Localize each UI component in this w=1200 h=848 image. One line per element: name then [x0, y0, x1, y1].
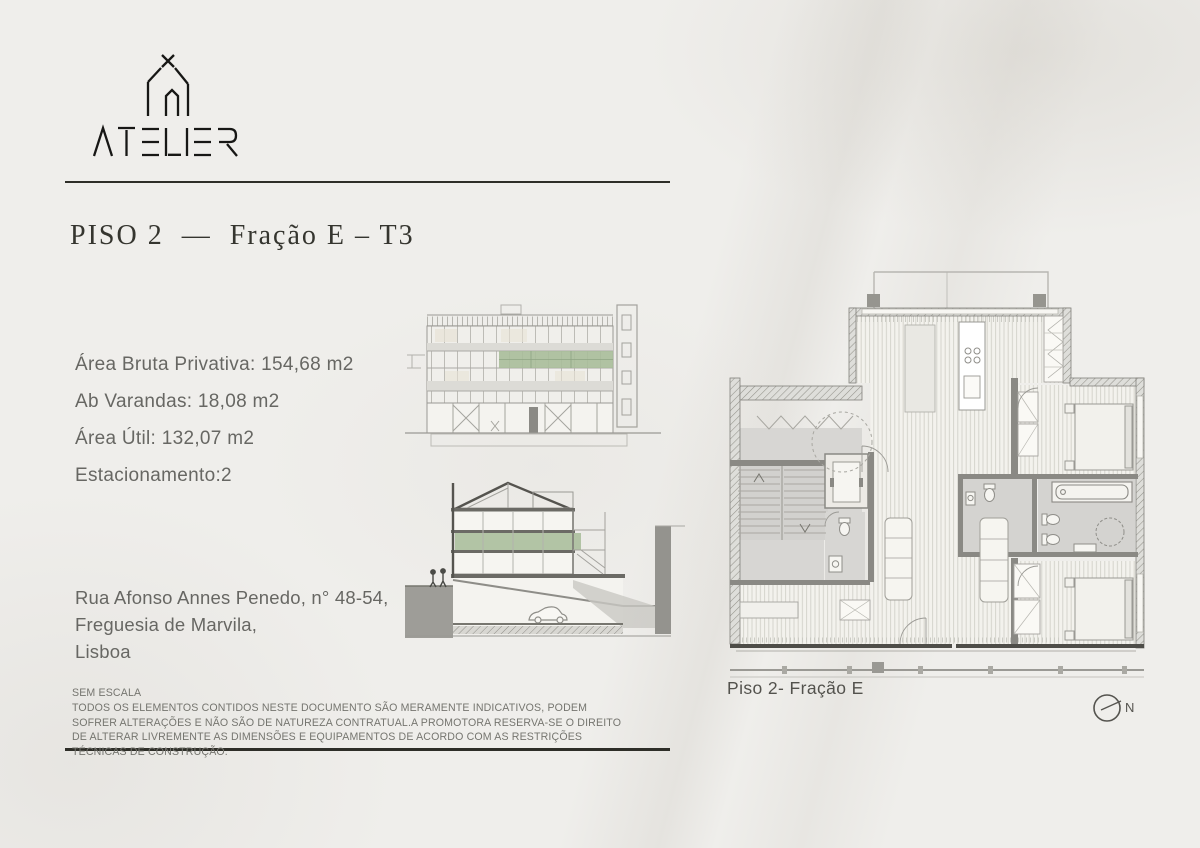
disclaimer-body: TODOS OS ELEMENTOS CONTIDOS NESTE DOCUME…: [72, 701, 628, 760]
brochure-page: { "brand": { "name": "ATELIER" }, "headi…: [0, 0, 1200, 848]
detail-estacionamento: Estacionamento:2: [75, 457, 354, 494]
plan-caption: Piso 2- Fração E: [727, 678, 864, 699]
divider-top: [65, 181, 670, 183]
atelier-logo: ATELIER: [88, 50, 258, 170]
elevation-drawing: [405, 293, 665, 451]
section-drawing: [405, 468, 690, 653]
legal-disclaimer: SEM ESCALA TODOS OS ELEMENTOS CONTIDOS N…: [72, 686, 628, 760]
address-street: Rua Afonso Annes Penedo, n° 48-54,: [75, 584, 389, 611]
kitchen-closet: [1044, 316, 1063, 382]
page-title: PISO 2 — Fração E – T3: [70, 220, 415, 252]
bed-2: [1065, 578, 1133, 640]
bathtub: [1052, 482, 1132, 502]
floor-plan-drawing: [722, 256, 1162, 681]
compass-needle: [1101, 701, 1121, 710]
roof-terrace: [874, 272, 1048, 308]
address-city: Lisboa: [75, 638, 389, 665]
house-logo-icon: [88, 50, 258, 170]
atelier-wordmark: [94, 128, 237, 156]
kitchen-island: [959, 322, 985, 410]
north-arrow: N: [1088, 686, 1158, 732]
section-floor2-highlight: [455, 533, 581, 550]
bed-1: [1065, 404, 1133, 470]
detail-area-util: Área Útil: 132,07 m2: [75, 420, 354, 457]
unit-details: Área Bruta Privativa: 154,68 m2 Ab Varan…: [75, 346, 354, 494]
property-address: Rua Afonso Annes Penedo, n° 48-54, Fregu…: [75, 584, 389, 665]
dining-table: [905, 325, 935, 412]
north-label: N: [1125, 700, 1134, 715]
balcony: [730, 651, 1144, 677]
address-parish: Freguesia de Marvila,: [75, 611, 389, 638]
people-figures: [430, 569, 446, 587]
detail-ab-varandas: Ab Varandas: 18,08 m2: [75, 383, 354, 420]
disclaimer-heading: SEM ESCALA: [72, 686, 628, 701]
detail-area-bruta: Área Bruta Privativa: 154,68 m2: [75, 346, 354, 383]
elevator: [825, 454, 868, 508]
